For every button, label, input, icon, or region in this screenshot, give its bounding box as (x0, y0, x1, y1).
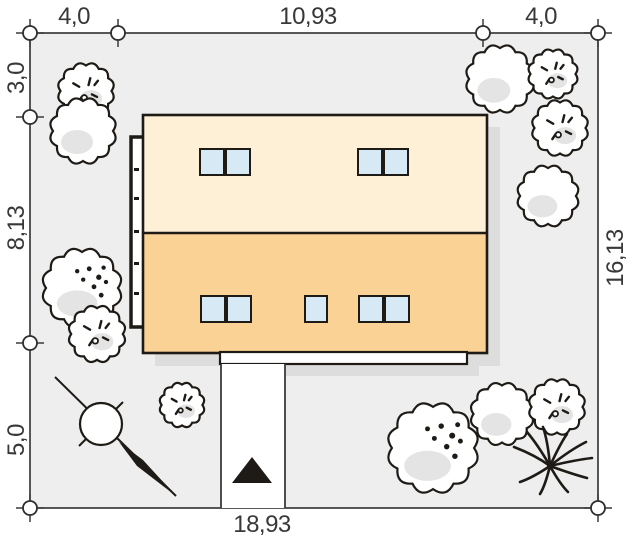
skylight-window (227, 296, 251, 322)
dimension-marker (591, 26, 605, 40)
roof-upper-slope (143, 115, 487, 233)
dimension-label-right: 16,13 (602, 229, 629, 287)
bush-icon (50, 98, 115, 163)
dimension-label-top-center: 10,93 (279, 3, 337, 30)
dimension-marker (23, 501, 37, 515)
skylight-window (201, 296, 225, 322)
dimension-marker (111, 26, 125, 40)
bush-icon (471, 383, 533, 445)
site-plan-page: 4,0 10,93 4,0 3,0 8,13 5,0 16,13 18,93 (0, 0, 634, 545)
bush-icon (518, 166, 579, 227)
skylight-window (200, 149, 224, 175)
walkway-path (221, 364, 285, 508)
tree-icon (69, 306, 125, 362)
skylight-window (305, 296, 327, 322)
house-roof (143, 115, 487, 353)
dimension-label-left-bottom: 5,0 (3, 424, 30, 456)
terrace-step (220, 352, 467, 364)
bush-icon (529, 379, 584, 434)
dimension-marker (23, 336, 37, 350)
skylight-window (385, 296, 409, 322)
dimension-label-bottom: 18,93 (233, 511, 291, 538)
dimension-marker (23, 26, 37, 40)
dimension-marker (476, 26, 490, 40)
dimension-label-left-top: 3,0 (3, 62, 30, 94)
roof-lower-slope (143, 233, 487, 353)
dimension-label-left-middle: 8,13 (3, 205, 30, 250)
skylight-window (359, 296, 383, 322)
bush-icon (160, 383, 204, 427)
bush-icon (532, 100, 587, 155)
dimension-marker (23, 110, 37, 124)
skylight-window (226, 149, 250, 175)
skylight-window (384, 149, 408, 175)
bush-icon (529, 50, 578, 99)
dimension-marker (591, 501, 605, 515)
tree-icon (388, 403, 477, 492)
skylight-window (358, 149, 382, 175)
dimension-label-top-right: 4,0 (525, 3, 557, 30)
site-plan-drawing: 4,0 10,93 4,0 3,0 8,13 5,0 16,13 18,93 (0, 0, 634, 545)
bush-icon (466, 45, 533, 112)
dimension-label-top-left: 4,0 (58, 3, 90, 30)
